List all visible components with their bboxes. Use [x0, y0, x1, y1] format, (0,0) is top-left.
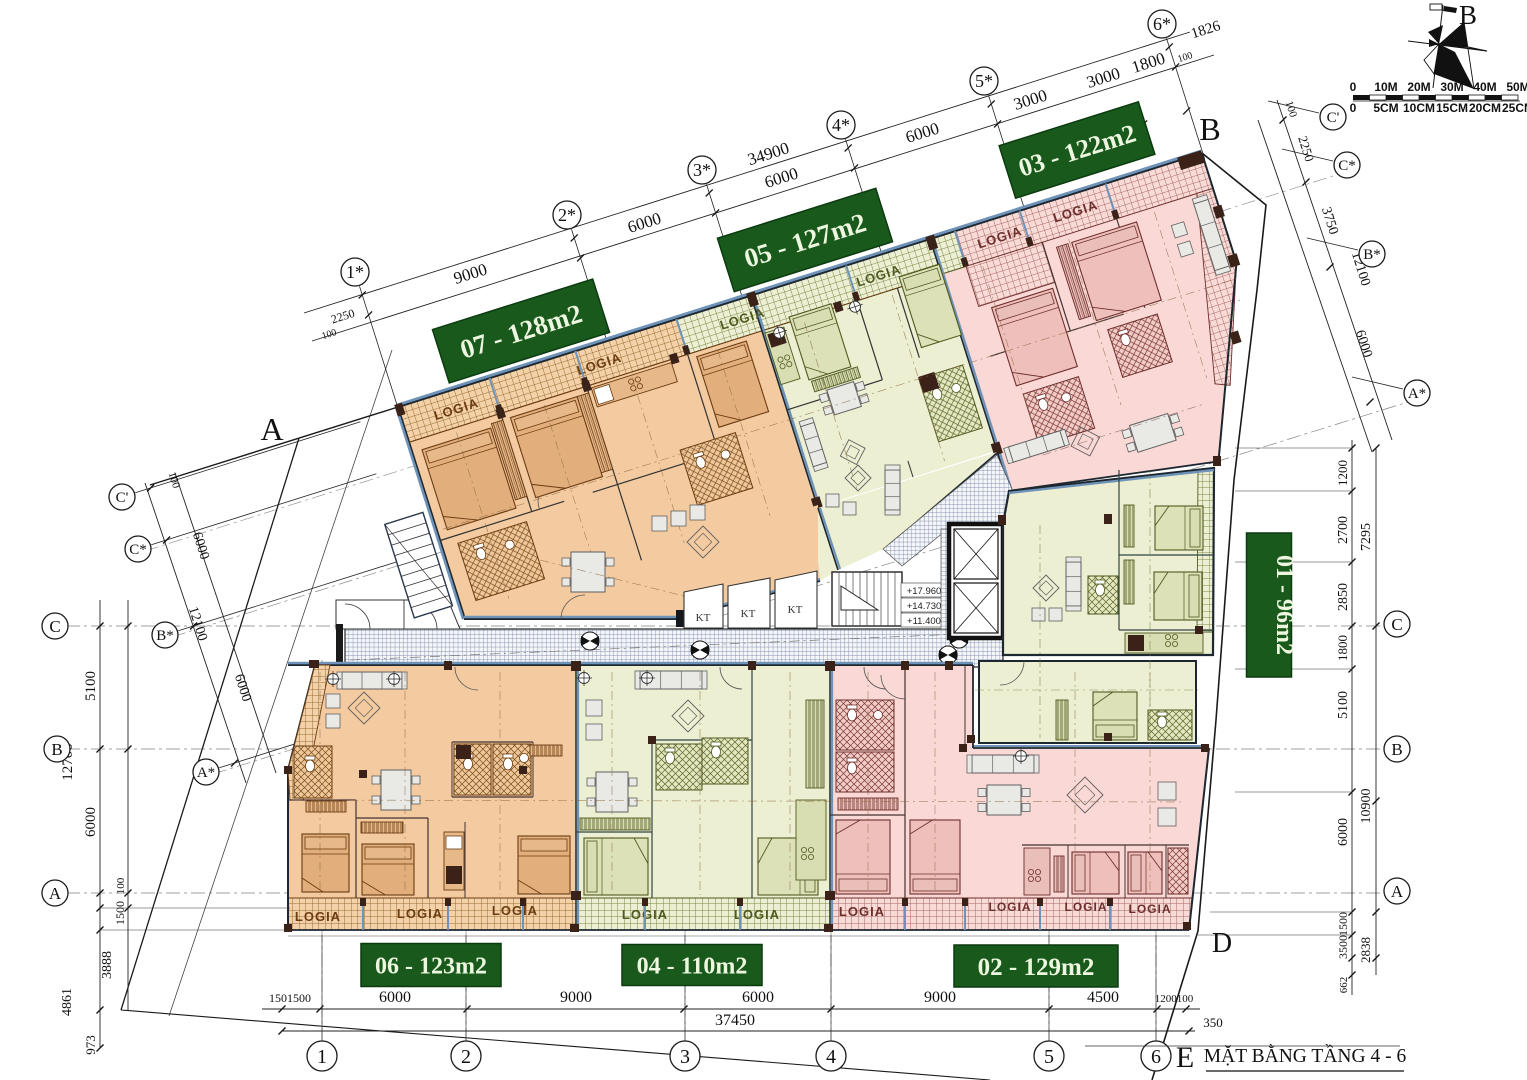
- svg-text:2838: 2838: [1358, 937, 1373, 963]
- svg-text:10900: 10900: [1359, 789, 1374, 824]
- svg-text:1500: 1500: [1336, 912, 1350, 936]
- svg-text:37450: 37450: [715, 1012, 755, 1029]
- svg-text:C: C: [49, 617, 60, 636]
- svg-text:5CM: 5CM: [1373, 101, 1398, 115]
- svg-text:B*: B*: [1363, 247, 1381, 263]
- svg-text:C': C': [1327, 110, 1340, 126]
- svg-text:3*: 3*: [693, 160, 711, 180]
- svg-text:04 - 110m2: 04 - 110m2: [637, 953, 748, 979]
- svg-text:LOGIA: LOGIA: [397, 906, 443, 921]
- svg-text:02 - 129m2: 02 - 129m2: [978, 954, 1095, 981]
- svg-text:LOGIA: LOGIA: [295, 909, 341, 924]
- svg-text:3500: 3500: [1336, 935, 1350, 959]
- svg-text:+11.400: +11.400: [907, 616, 941, 627]
- svg-text:A*: A*: [1408, 386, 1426, 402]
- svg-text:662: 662: [1338, 977, 1350, 994]
- svg-text:9000: 9000: [560, 989, 592, 1006]
- svg-text:+14.730: +14.730: [907, 601, 942, 612]
- svg-text:B: B: [51, 740, 62, 759]
- svg-text:40M: 40M: [1473, 80, 1496, 94]
- svg-text:5: 5: [1044, 1046, 1054, 1068]
- svg-text:D: D: [1212, 928, 1232, 959]
- svg-text:A: A: [49, 884, 62, 903]
- svg-text:1500: 1500: [113, 901, 127, 925]
- svg-text:0: 0: [1350, 80, 1357, 94]
- svg-text:LOGIA: LOGIA: [839, 904, 885, 919]
- svg-text:5*: 5*: [975, 71, 993, 91]
- svg-text:20CM: 20CM: [1469, 101, 1501, 115]
- svg-text:LOGIA: LOGIA: [1129, 902, 1172, 916]
- svg-text:7295: 7295: [1359, 523, 1374, 551]
- svg-text:3888: 3888: [100, 951, 115, 979]
- svg-text:A*: A*: [197, 765, 215, 781]
- svg-text:5100: 5100: [1336, 691, 1351, 719]
- svg-text:5100: 5100: [83, 671, 99, 701]
- svg-text:50M: 50M: [1506, 80, 1527, 94]
- svg-text:6000: 6000: [1336, 818, 1351, 846]
- svg-text:9000: 9000: [924, 989, 956, 1006]
- svg-text:6000: 6000: [742, 989, 774, 1006]
- svg-text:10M: 10M: [1374, 80, 1397, 94]
- svg-text:01 - 96m2: 01 - 96m2: [1271, 555, 1297, 655]
- svg-text:350: 350: [1203, 1015, 1223, 1030]
- svg-text:KT: KT: [788, 604, 803, 616]
- svg-text:1*: 1*: [346, 262, 364, 282]
- svg-text:10CM: 10CM: [1403, 101, 1435, 115]
- svg-text:6*: 6*: [1153, 14, 1171, 34]
- svg-text:2*: 2*: [558, 205, 576, 225]
- svg-text:KT: KT: [741, 608, 756, 620]
- svg-text:B*: B*: [156, 628, 174, 644]
- svg-text:4500: 4500: [1087, 989, 1119, 1006]
- svg-text:2700: 2700: [1336, 516, 1351, 544]
- svg-text:1501500: 1501500: [269, 991, 311, 1005]
- svg-text:LOGIA: LOGIA: [989, 900, 1032, 914]
- svg-text:1800: 1800: [1335, 635, 1350, 661]
- svg-text:1: 1: [317, 1046, 327, 1068]
- svg-text:20M: 20M: [1407, 80, 1430, 94]
- svg-text:A: A: [1391, 882, 1404, 901]
- svg-text:100: 100: [115, 877, 127, 894]
- svg-text:B: B: [1199, 111, 1220, 147]
- svg-text:2850: 2850: [1336, 583, 1351, 611]
- svg-text:C*: C*: [1338, 158, 1356, 174]
- svg-text:15CM: 15CM: [1436, 101, 1468, 115]
- svg-text:6000: 6000: [83, 807, 99, 837]
- svg-text:A: A: [260, 411, 283, 447]
- svg-text:C: C: [1391, 615, 1402, 634]
- svg-text:1200100: 1200100: [1155, 993, 1194, 1005]
- svg-text:4*: 4*: [832, 115, 850, 135]
- svg-text:1200: 1200: [1335, 460, 1350, 486]
- svg-text:3: 3: [680, 1046, 690, 1068]
- svg-text:C': C': [116, 490, 129, 506]
- svg-text:4: 4: [826, 1046, 836, 1068]
- svg-text:25CM: 25CM: [1502, 101, 1527, 115]
- svg-text:06 - 123m2: 06 - 123m2: [375, 953, 487, 979]
- svg-text:C*: C*: [129, 542, 147, 558]
- svg-text:6000: 6000: [379, 989, 411, 1006]
- svg-text:4861: 4861: [60, 988, 75, 1016]
- svg-text:30M: 30M: [1440, 80, 1463, 94]
- svg-text:+17.960: +17.960: [907, 586, 942, 597]
- svg-text:B: B: [1459, 0, 1477, 30]
- svg-text:B: B: [1391, 740, 1402, 759]
- svg-text:6: 6: [1151, 1046, 1161, 1068]
- svg-text:2: 2: [461, 1046, 471, 1068]
- svg-text:LOGIA: LOGIA: [492, 903, 538, 918]
- svg-text:0: 0: [1350, 101, 1357, 115]
- svg-text:973: 973: [83, 1035, 98, 1055]
- svg-text:KT: KT: [696, 612, 711, 624]
- svg-text:LOGIA: LOGIA: [1065, 900, 1108, 914]
- svg-text:MẶT BẰNG TẦNG 4 - 6: MẶT BẰNG TẦNG 4 - 6: [1204, 1045, 1407, 1067]
